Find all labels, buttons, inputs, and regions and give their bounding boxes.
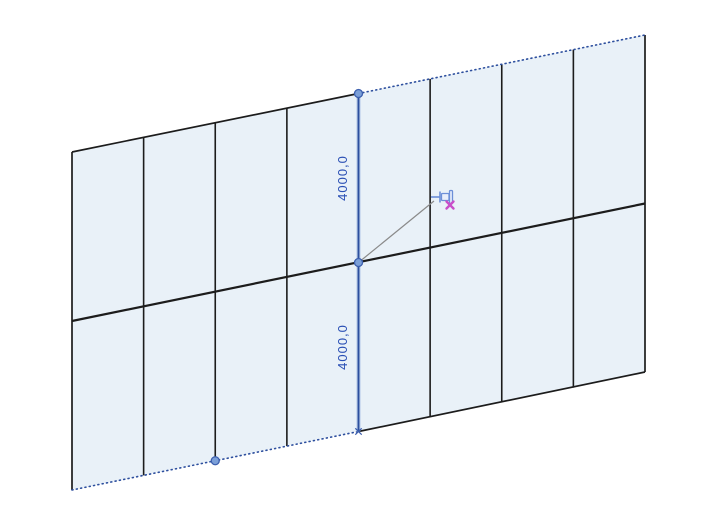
- grid-endpoint-control[interactable]: [355, 90, 363, 98]
- viewport-canvas[interactable]: 4000,0 4000,0: [0, 0, 706, 527]
- grid-endpoint-control[interactable]: [355, 259, 363, 267]
- temp-dimension-lower[interactable]: 4000,0: [335, 324, 350, 370]
- temp-dimension-upper[interactable]: 4000,0: [335, 155, 350, 201]
- drawing-viewport[interactable]: 4000,0 4000,0: [0, 0, 706, 527]
- grid-endpoint-control[interactable]: [211, 457, 219, 465]
- pin-body: [442, 194, 450, 201]
